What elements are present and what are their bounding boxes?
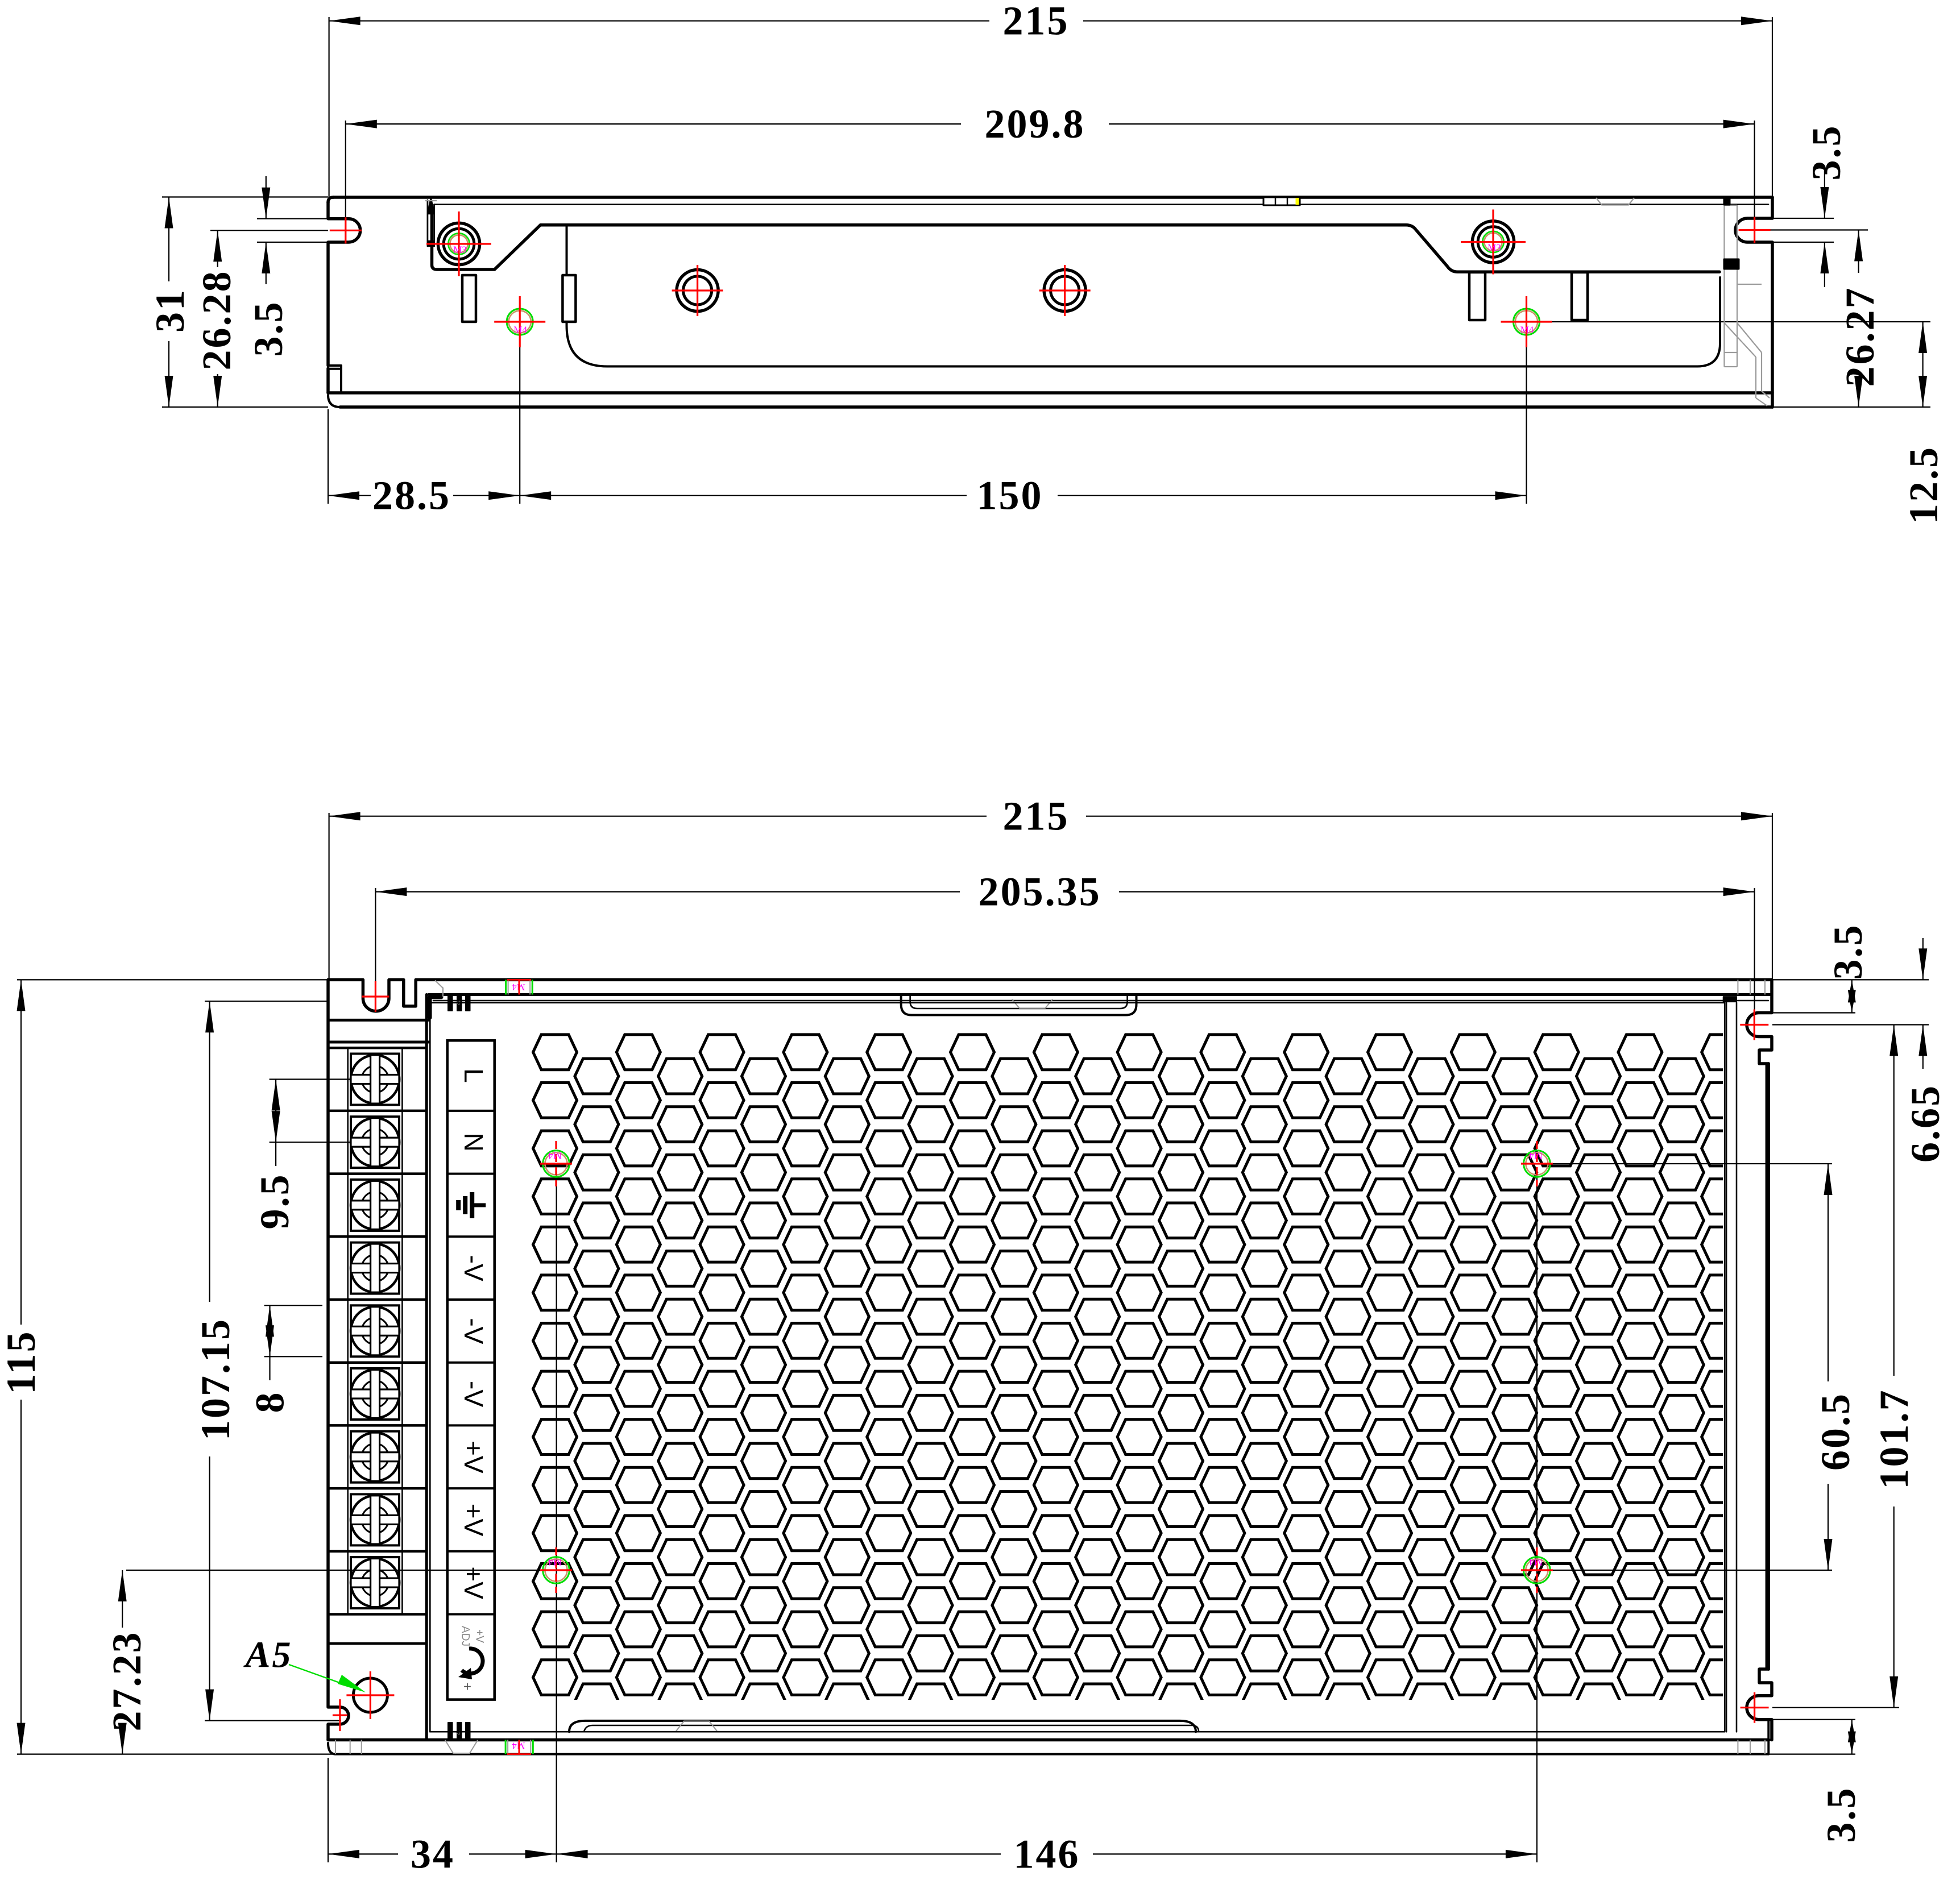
- svg-text:M4: M4: [1520, 325, 1534, 335]
- svg-text:215: 215: [1003, 0, 1070, 44]
- svg-text:107.15: 107.15: [193, 1318, 238, 1441]
- svg-text:3.5: 3.5: [1818, 1787, 1864, 1843]
- svg-text:-V: -V: [459, 1318, 488, 1344]
- svg-text:8: 8: [247, 1391, 293, 1413]
- svg-text:12.5: 12.5: [1901, 446, 1946, 524]
- svg-text:-V: -V: [459, 1255, 488, 1281]
- svg-text:26.28: 26.28: [194, 270, 239, 371]
- svg-text:31: 31: [147, 288, 193, 333]
- svg-text:+V: +V: [459, 1566, 488, 1599]
- svg-text:26.27: 26.27: [1837, 287, 1883, 387]
- svg-text:N: N: [459, 1133, 488, 1152]
- svg-text:M4: M4: [548, 1557, 562, 1568]
- svg-text:M4: M4: [513, 325, 527, 335]
- svg-text:60.5: 60.5: [1813, 1392, 1858, 1471]
- svg-text:+V: +V: [459, 1441, 488, 1474]
- svg-text:M4: M4: [548, 1151, 562, 1161]
- svg-text:L: L: [459, 1068, 488, 1083]
- svg-text:M3: M3: [1487, 242, 1501, 253]
- svg-text:+V: +V: [474, 1629, 486, 1643]
- svg-text:3.5: 3.5: [1825, 924, 1871, 980]
- svg-text:215: 215: [1003, 794, 1070, 839]
- svg-text:M4: M4: [1529, 1151, 1543, 1161]
- svg-text:27.23: 27.23: [104, 1631, 150, 1732]
- svg-text:28.5: 28.5: [372, 473, 451, 518]
- svg-text:M3: M3: [453, 244, 467, 255]
- svg-text:150: 150: [977, 473, 1043, 518]
- svg-text:101.7: 101.7: [1871, 1389, 1917, 1489]
- svg-text:+: +: [463, 1679, 471, 1695]
- svg-text:+V: +V: [459, 1504, 488, 1537]
- svg-text:146: 146: [1014, 1831, 1080, 1877]
- svg-text:ADJ: ADJ: [459, 1626, 471, 1646]
- svg-text:6.65: 6.65: [1903, 1084, 1948, 1163]
- svg-text:115: 115: [0, 1330, 44, 1394]
- svg-text:A5: A5: [243, 1634, 292, 1676]
- svg-text:205.35: 205.35: [979, 869, 1101, 915]
- svg-text:209.8: 209.8: [985, 101, 1085, 147]
- svg-text:34: 34: [411, 1831, 455, 1877]
- svg-text:9.5: 9.5: [252, 1173, 297, 1230]
- svg-text:M4: M4: [1529, 1557, 1543, 1568]
- svg-text:-V: -V: [459, 1381, 488, 1407]
- svg-text:3.5: 3.5: [246, 301, 291, 357]
- svg-text:3.5: 3.5: [1804, 124, 1849, 181]
